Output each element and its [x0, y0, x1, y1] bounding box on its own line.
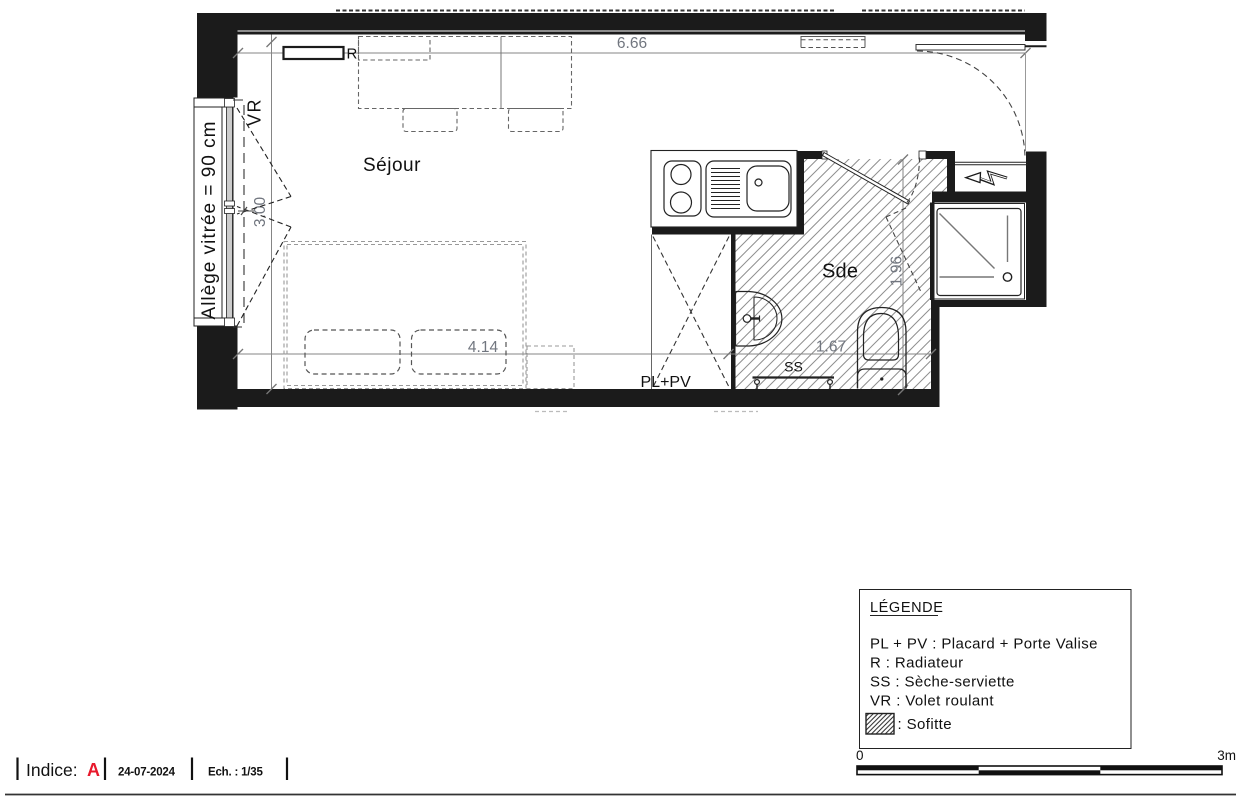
svg-text:Sde: Sde [822, 261, 858, 283]
svg-text:PL+PV: PL+PV [641, 374, 692, 391]
svg-text:6.66: 6.66 [617, 35, 647, 52]
svg-text:Allège vitrée = 90 cm: Allège vitrée = 90 cm [199, 121, 220, 320]
svg-text:R: R [347, 46, 358, 63]
svg-text:A: A [87, 760, 100, 780]
svg-text:Séjour: Séjour [363, 155, 421, 176]
svg-text:3m: 3m [1217, 748, 1236, 763]
svg-text:3.00: 3.00 [252, 197, 269, 228]
svg-text:R : Radiateur: R : Radiateur [870, 655, 964, 672]
svg-text:24-07-2024: 24-07-2024 [118, 767, 176, 779]
svg-text:4.14: 4.14 [468, 339, 499, 356]
svg-text:1.67: 1.67 [816, 339, 846, 356]
svg-text:Ech. : 1/35: Ech. : 1/35 [208, 767, 263, 779]
svg-text:SS : Sèche-serviette: SS : Sèche-serviette [870, 674, 1015, 691]
svg-text:LÉGENDE: LÉGENDE [870, 599, 944, 616]
svg-text:VR: VR [245, 98, 265, 126]
svg-text:0: 0 [856, 748, 864, 763]
svg-text:VR : Volet roulant: VR : Volet roulant [870, 693, 994, 710]
svg-text:: Sofitte: : Sofitte [898, 716, 952, 733]
svg-text:PL + PV : Placard + Porte Vali: PL + PV : Placard + Porte Valise [870, 636, 1098, 653]
svg-text:SS: SS [784, 359, 803, 375]
svg-text:Indice:: Indice: [26, 760, 78, 780]
svg-text:1.96: 1.96 [889, 256, 906, 286]
